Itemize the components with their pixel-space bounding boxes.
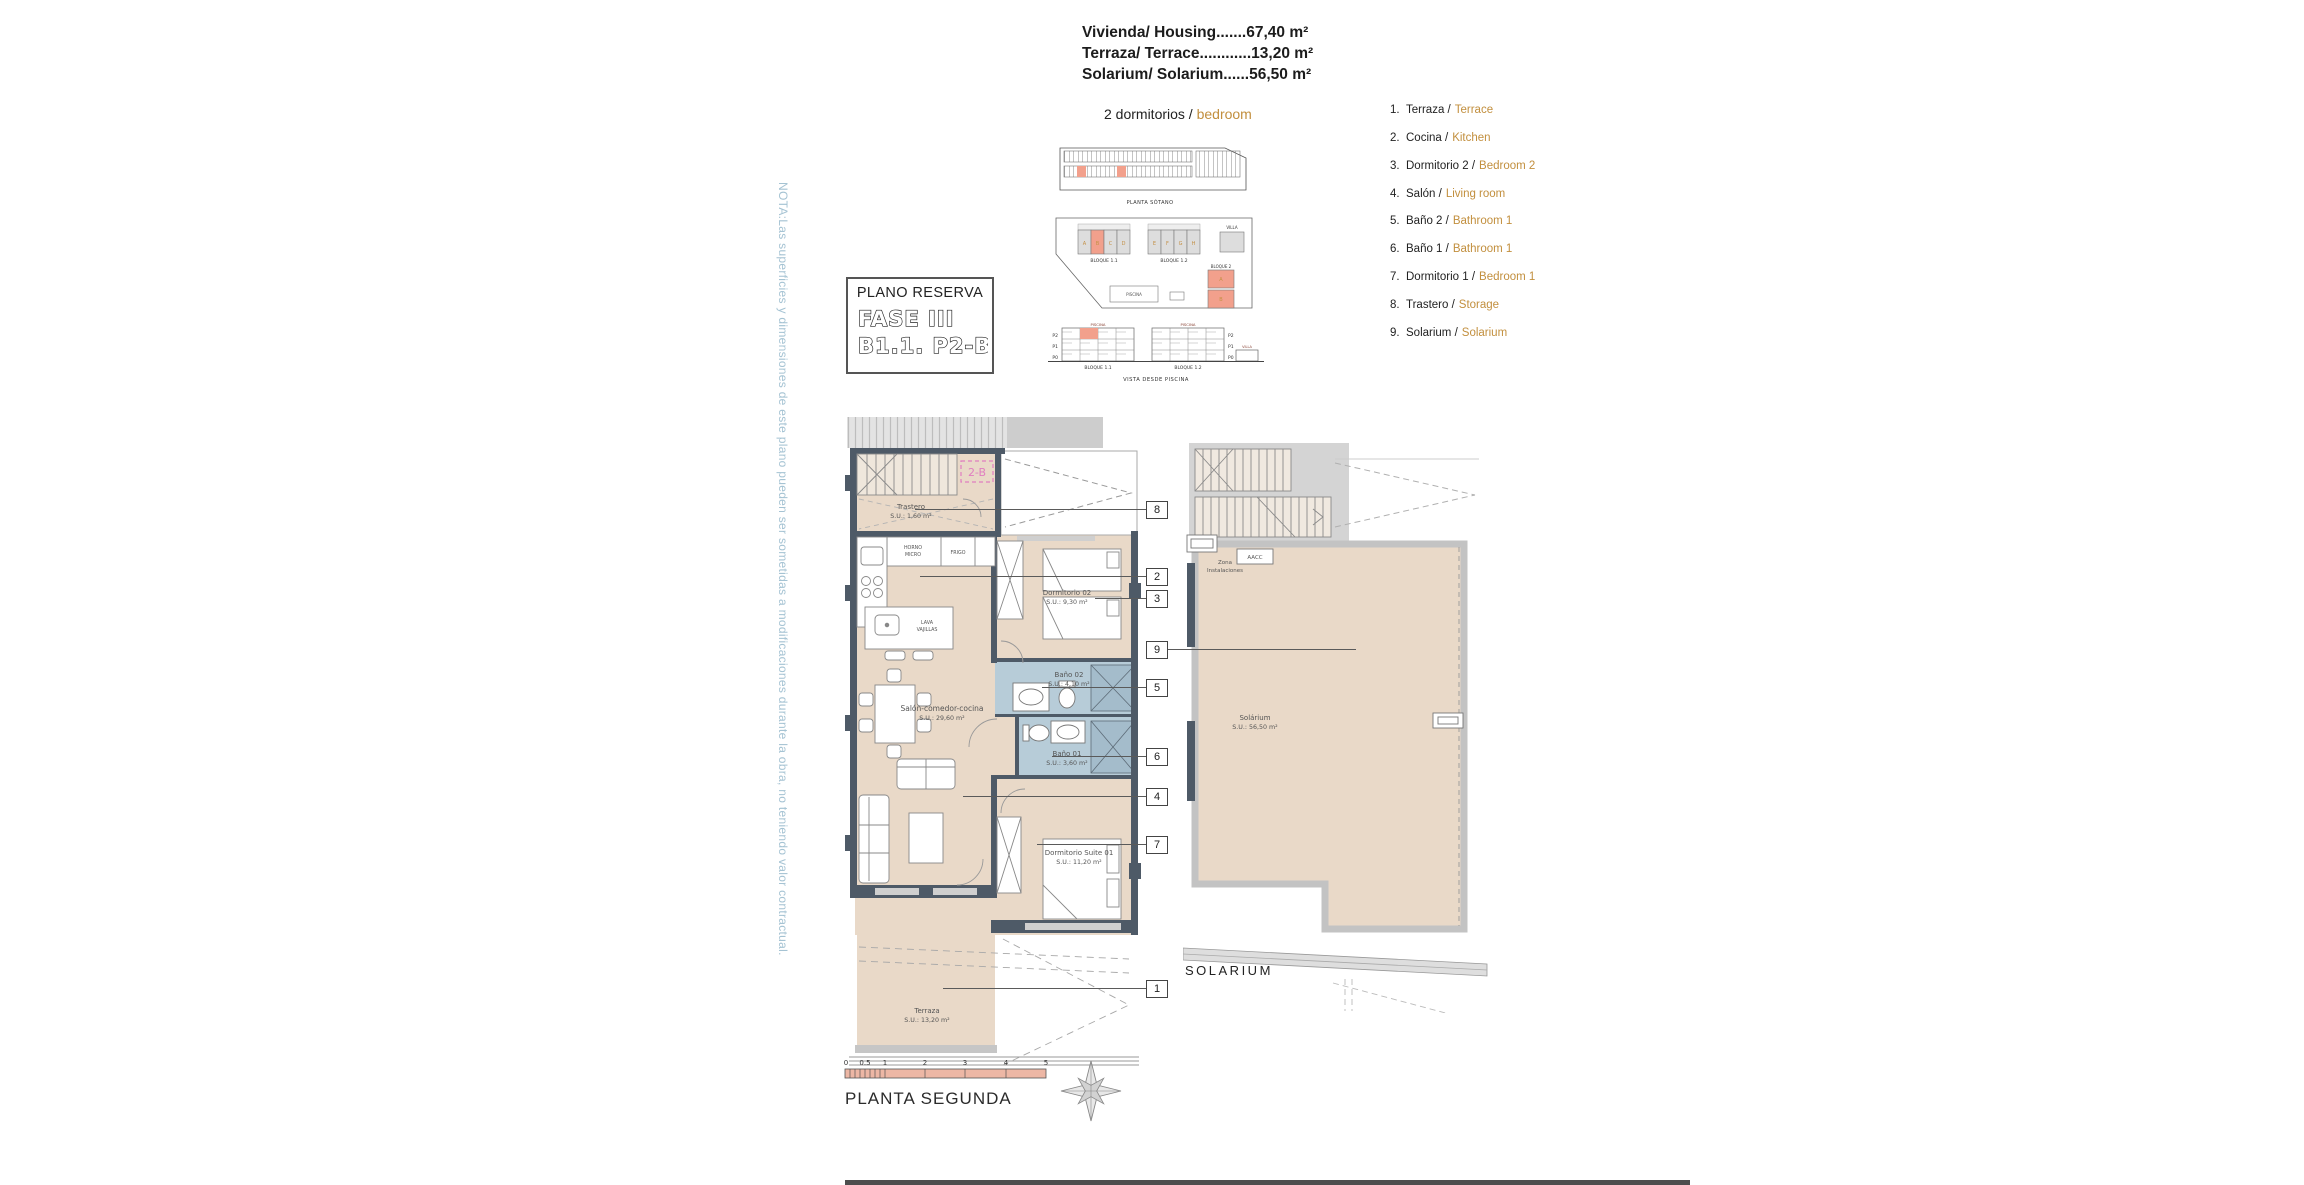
roof-dashes-bottom bbox=[1333, 979, 1483, 1013]
bedrooms-es: 2 dormitorios / bbox=[1104, 106, 1193, 122]
legend-item-7: 7.Dormitorio 1 /Bedroom 1 bbox=[1390, 271, 1535, 283]
svg-text:Dormitorio 02: Dormitorio 02 bbox=[1043, 589, 1091, 597]
callout-8: 8 bbox=[1146, 501, 1168, 519]
svg-text:HORNO: HORNO bbox=[904, 545, 922, 551]
svg-text:F: F bbox=[1166, 241, 1169, 247]
callout-3: 3 bbox=[1146, 590, 1168, 608]
scale-ticks: 0 0.5 1 2 3 4 5 bbox=[844, 1059, 1048, 1067]
svg-text:S.U.: 11,20 m²: S.U.: 11,20 m² bbox=[1056, 859, 1102, 866]
bottom-edge-bar bbox=[845, 1180, 1690, 1185]
leader-9 bbox=[1168, 649, 1356, 650]
svg-text:BLOQUE 1.2: BLOQUE 1.2 bbox=[1174, 365, 1201, 371]
site-plan: A B C D E F G H A B BLOQUE 1.1 BLOQUE 1.… bbox=[1056, 218, 1252, 308]
callout-5: 5 bbox=[1146, 679, 1168, 697]
summary-solarium: Solarium/ Solarium......56,50 m² bbox=[1082, 64, 1313, 85]
elevation-view: P2 P1 P0 P2 P1 P0 PISCINA PISCINA VILLA … bbox=[1048, 322, 1264, 383]
reserva-box: PLANO RESERVA FASE III B1.1. P2-B bbox=[846, 277, 994, 374]
svg-text:E: E bbox=[1153, 241, 1156, 247]
terrace-floor bbox=[857, 898, 995, 1050]
leader-2 bbox=[920, 576, 1146, 577]
svg-text:Dormitorio Suite 01: Dormitorio Suite 01 bbox=[1045, 849, 1114, 857]
zona-label-1: Zona bbox=[1218, 560, 1232, 566]
solarium-floorplan: AACC Zona Instalaciones Solárium S.U.: 5… bbox=[1183, 423, 1497, 1013]
svg-text:H: H bbox=[1192, 241, 1196, 247]
legend-item-8: 8.Trastero /Storage bbox=[1390, 299, 1499, 311]
solarium-wall-seg2 bbox=[1187, 721, 1195, 801]
svg-text:P2: P2 bbox=[1228, 333, 1234, 339]
roof-dashes-top bbox=[1335, 463, 1475, 527]
site-block12-label: BLOQUE 1.2 bbox=[1160, 258, 1187, 264]
elevation-highlight-cell bbox=[1080, 328, 1098, 339]
reserva-unit: B1.1. P2-B bbox=[858, 334, 988, 358]
legend-item-1: 1.Terraza /Terrace bbox=[1390, 104, 1493, 116]
svg-text:S.U.: 1,60 m²: S.U.: 1,60 m² bbox=[890, 513, 932, 520]
svg-text:S.U.: 9,30 m²: S.U.: 9,30 m² bbox=[1046, 599, 1088, 606]
callout-6: 6 bbox=[1146, 748, 1168, 766]
legend-item-6: 6.Baño 1 /Bathroom 1 bbox=[1390, 243, 1512, 255]
svg-text:P2: P2 bbox=[1052, 333, 1058, 339]
svg-text:1: 1 bbox=[883, 1059, 887, 1067]
site-villa-label: VILLA bbox=[1226, 225, 1237, 230]
plan-sheet: NOTA:Las superficies y dimensiones de es… bbox=[0, 0, 2304, 1185]
scale-bar: 0 0.5 1 2 3 4 5 bbox=[843, 1056, 1055, 1090]
svg-text:D: D bbox=[1122, 241, 1126, 247]
basement-highlight-cell-2 bbox=[1117, 166, 1126, 177]
svg-text:2: 2 bbox=[923, 1059, 927, 1067]
zona-label-2: Instalaciones bbox=[1207, 568, 1243, 574]
site-block11-label: BLOQUE 1.1 bbox=[1090, 258, 1117, 264]
svg-text:G: G bbox=[1179, 241, 1183, 247]
svg-text:S.U.: 29,60 m²: S.U.: 29,60 m² bbox=[919, 715, 965, 722]
area-summary: Vivienda/ Housing.......67,40 m² Terraza… bbox=[1082, 22, 1313, 85]
svg-text:S.U.: 13,20 m²: S.U.: 13,20 m² bbox=[904, 1017, 950, 1024]
basement-plan: PLANTA SÓTANO bbox=[1060, 148, 1246, 206]
svg-text:A: A bbox=[1219, 277, 1223, 283]
solarium-floor bbox=[1195, 544, 1464, 929]
unit-tag: 2-B bbox=[968, 466, 986, 479]
reserva-title: PLANO RESERVA bbox=[854, 285, 986, 301]
legend-item-4: 4.Salón /Living room bbox=[1390, 188, 1505, 200]
site-diagrams: PLANTA SÓTANO A bbox=[1040, 138, 1270, 386]
callout-4: 4 bbox=[1146, 788, 1168, 806]
summary-terrace: Terraza/ Terrace............13,20 m² bbox=[1082, 43, 1313, 64]
solarium-caption: SOLARIUM bbox=[1185, 963, 1273, 978]
svg-text:Solárium: Solárium bbox=[1239, 714, 1270, 722]
site-piscina-label: PISCINA bbox=[1126, 292, 1142, 297]
stairs bbox=[857, 454, 957, 495]
callout-9: 9 bbox=[1146, 641, 1168, 659]
legend-item-2: 2.Cocina /Kitchen bbox=[1390, 132, 1491, 144]
svg-text:0.5: 0.5 bbox=[859, 1059, 870, 1067]
callout-2: 2 bbox=[1146, 568, 1168, 586]
svg-text:A: A bbox=[1083, 241, 1087, 247]
leader-7 bbox=[1037, 844, 1146, 845]
svg-text:Terraza: Terraza bbox=[913, 1007, 939, 1015]
svg-text:Baño 02: Baño 02 bbox=[1055, 671, 1084, 679]
svg-text:B: B bbox=[1096, 241, 1100, 247]
compass-rose-icon bbox=[1056, 1056, 1126, 1126]
floor-caption: PLANTA SEGUNDA bbox=[845, 1089, 1012, 1109]
svg-text:FRIGO: FRIGO bbox=[951, 550, 966, 556]
solarium-wall-seg1 bbox=[1187, 563, 1195, 647]
svg-text:C: C bbox=[1109, 241, 1113, 247]
leader-5 bbox=[1042, 687, 1146, 688]
legend-item-3: 3.Dormitorio 2 /Bedroom 2 bbox=[1390, 160, 1535, 172]
summary-housing: Vivienda/ Housing.......67,40 m² bbox=[1082, 22, 1313, 43]
svg-text:Salón-comedor-cocina: Salón-comedor-cocina bbox=[900, 704, 983, 713]
reserva-stencil: FASE III B1.1. P2-B bbox=[854, 303, 988, 363]
leader-1 bbox=[943, 988, 1146, 989]
svg-text:P1: P1 bbox=[1052, 344, 1058, 350]
leader-6 bbox=[1052, 756, 1146, 757]
reserva-phase: FASE III bbox=[858, 307, 954, 331]
svg-text:MICRO: MICRO bbox=[905, 552, 921, 558]
svg-text:S.U.: 3,60 m²: S.U.: 3,60 m² bbox=[1046, 760, 1088, 767]
svg-text:LAVA: LAVA bbox=[921, 620, 934, 626]
basement-caption: PLANTA SÓTANO bbox=[1127, 199, 1174, 206]
aacc-label: AACC bbox=[1247, 555, 1262, 561]
svg-text:VILLA: VILLA bbox=[1242, 345, 1252, 349]
svg-text:0: 0 bbox=[844, 1059, 848, 1067]
svg-text:P0: P0 bbox=[1228, 355, 1234, 361]
svg-text:S.U.: 56,50 m²: S.U.: 56,50 m² bbox=[1232, 724, 1278, 731]
callout-7: 7 bbox=[1146, 836, 1168, 854]
bedrooms-en: bedroom bbox=[1197, 106, 1252, 122]
svg-text:PISCINA: PISCINA bbox=[1180, 322, 1195, 327]
svg-text:5: 5 bbox=[1044, 1059, 1048, 1067]
svg-text:4: 4 bbox=[1004, 1059, 1009, 1067]
leader-4 bbox=[963, 796, 1146, 797]
svg-text:B: B bbox=[1219, 297, 1223, 303]
site-block2-label: BLOQUE 2 bbox=[1211, 264, 1232, 269]
callout-1: 1 bbox=[1146, 980, 1168, 998]
svg-text:BLOQUE 1.1: BLOQUE 1.1 bbox=[1084, 365, 1111, 371]
svg-text:3: 3 bbox=[963, 1059, 967, 1067]
leader-8 bbox=[915, 509, 1146, 510]
basement-highlight-cell bbox=[1077, 166, 1086, 177]
svg-text:P0: P0 bbox=[1052, 355, 1058, 361]
leader-3 bbox=[1095, 598, 1146, 599]
bedrooms-line: 2 dormitorios / bedroom bbox=[1104, 106, 1252, 122]
svg-text:P1: P1 bbox=[1228, 344, 1234, 350]
terrace-wall bbox=[855, 1045, 997, 1053]
apartment-floorplan: 2-B HORNO MICRO FRIGO LAVA VAJILLAS bbox=[845, 415, 1145, 1085]
svg-text:PISCINA: PISCINA bbox=[1090, 322, 1105, 327]
legend-item-9: 9.Solarium /Solarium bbox=[1390, 327, 1507, 339]
legend-item-5: 5.Baño 2 /Bathroom 1 bbox=[1390, 215, 1512, 227]
svg-text:VAJILLAS: VAJILLAS bbox=[917, 627, 938, 633]
disclaimer-note: NOTA:Las superficies y dimensiones de es… bbox=[776, 182, 790, 1032]
elevation-caption: VISTA DESDE PISCINA bbox=[1123, 377, 1189, 383]
